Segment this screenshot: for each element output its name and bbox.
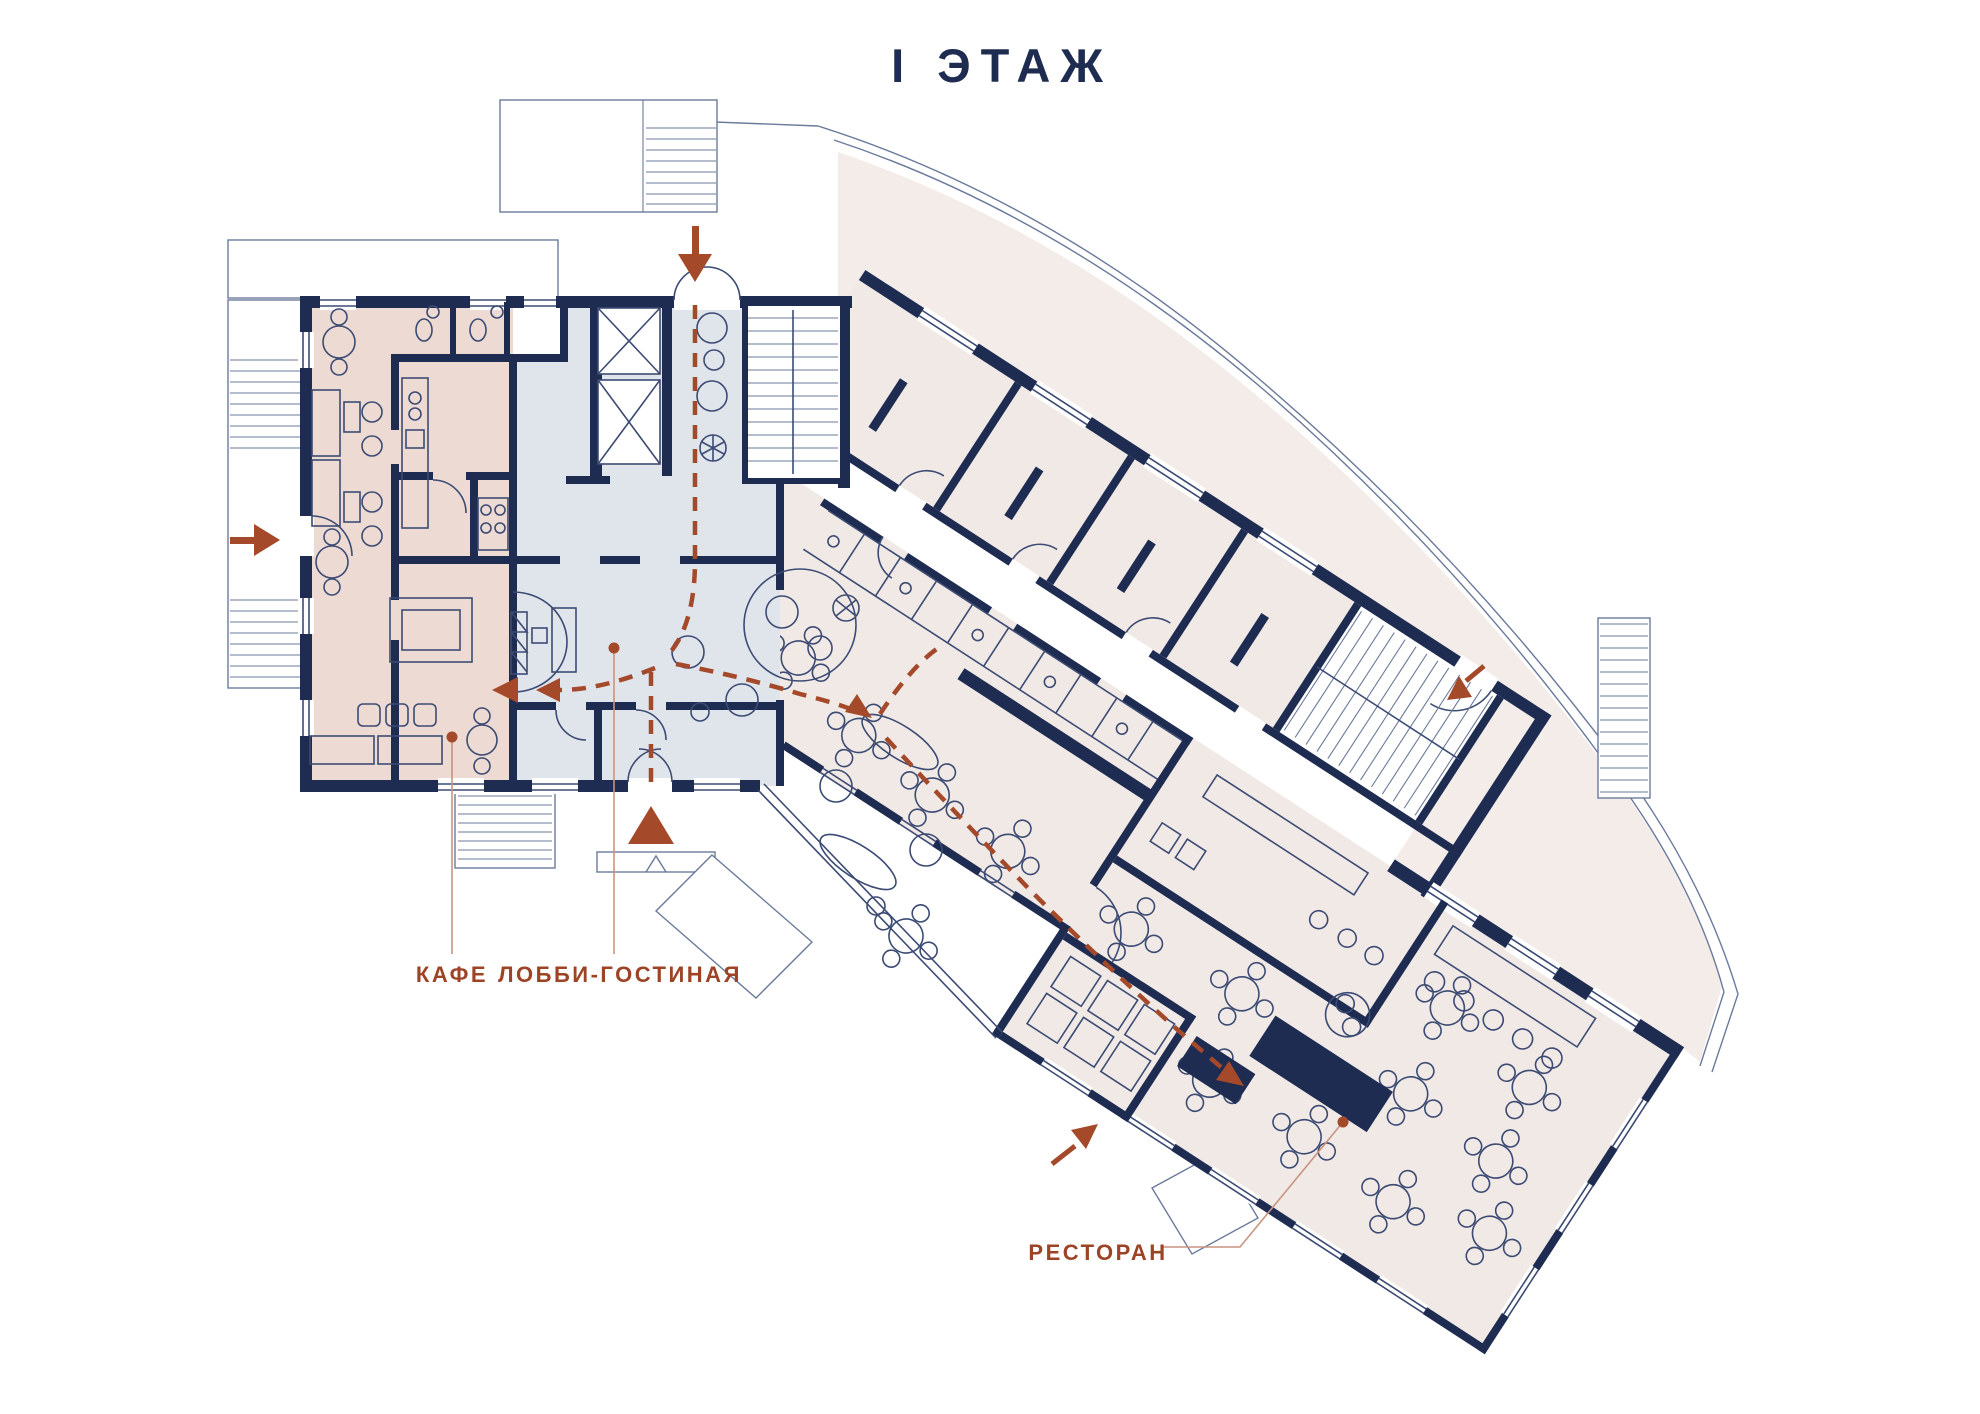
main-entrance-triangle — [628, 806, 674, 844]
lobby-leader-dot — [609, 643, 620, 654]
floor-plan-page: I ЭТАЖ — [0, 0, 1980, 1414]
elevators — [598, 308, 660, 464]
left-block-group — [298, 267, 852, 794]
cafe-label: КАФЕ — [416, 962, 488, 987]
page-title: I ЭТАЖ — [891, 39, 1113, 92]
core-stair — [748, 306, 840, 478]
restaurant-entrance-arrow — [1052, 1124, 1098, 1164]
top-terrace — [500, 100, 717, 212]
left-terrace — [228, 300, 302, 688]
cafe-leader-dot — [447, 732, 458, 743]
lobby-label: ЛОББИ-ГОСТИНАЯ — [498, 962, 742, 987]
cafe-terrace — [455, 790, 555, 868]
restaurant-label: РЕСТОРАН — [1028, 1240, 1167, 1265]
top-entrance-arrow — [678, 226, 712, 282]
restaurant-leader-dot — [1338, 1117, 1349, 1128]
floor-plan-svg: I ЭТАЖ — [0, 0, 1980, 1414]
left-top-terrace — [228, 240, 558, 298]
